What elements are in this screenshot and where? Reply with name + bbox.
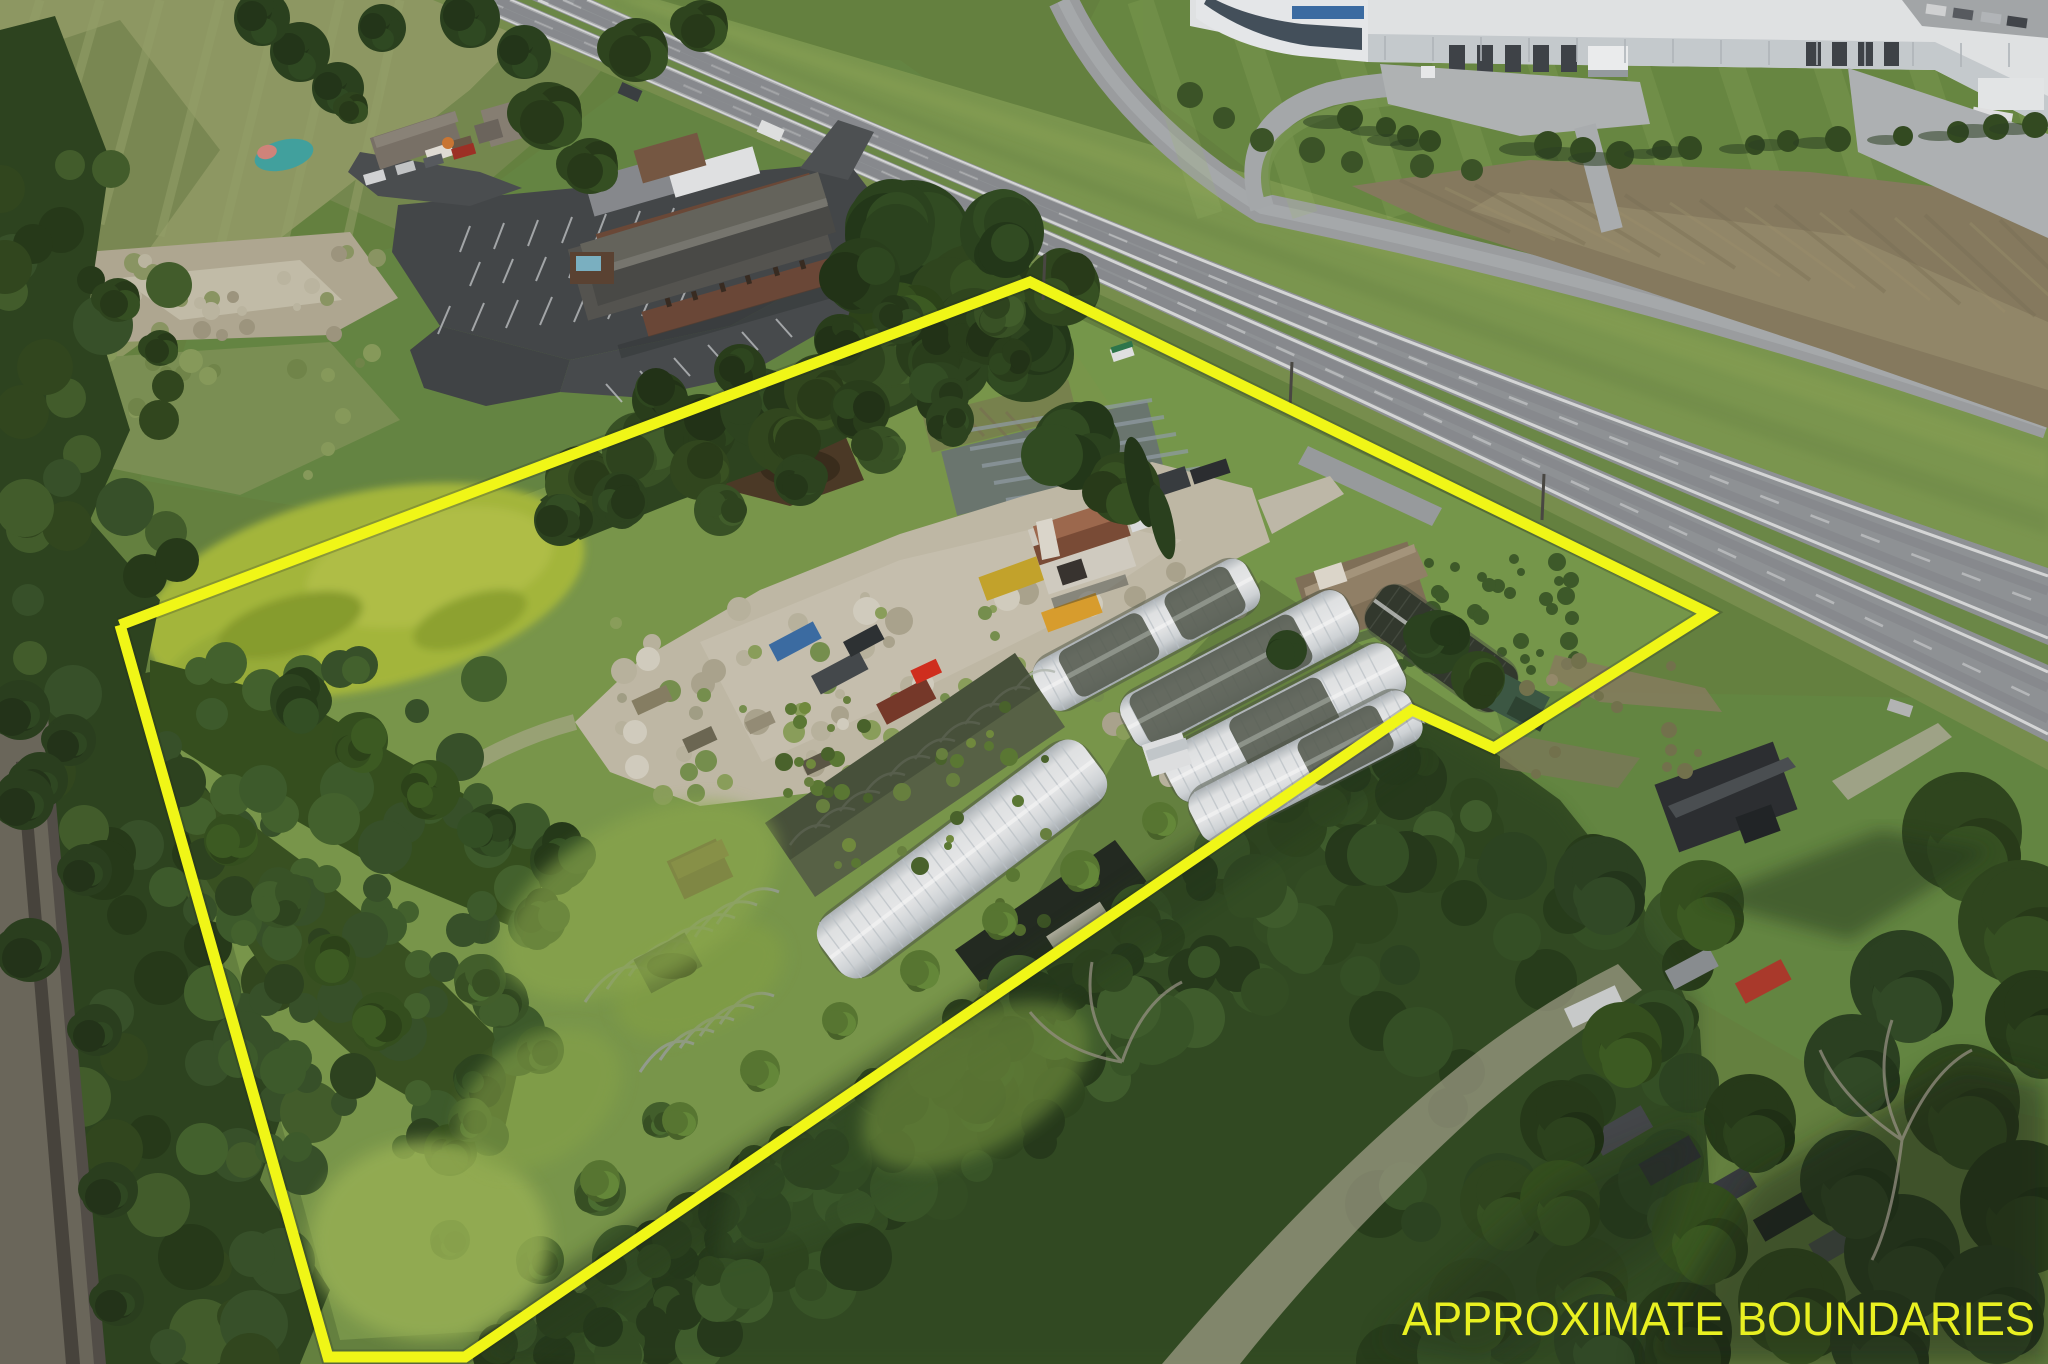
svg-text:APPROXIMATE BOUNDARIES: APPROXIMATE BOUNDARIES	[1402, 1293, 2035, 1346]
